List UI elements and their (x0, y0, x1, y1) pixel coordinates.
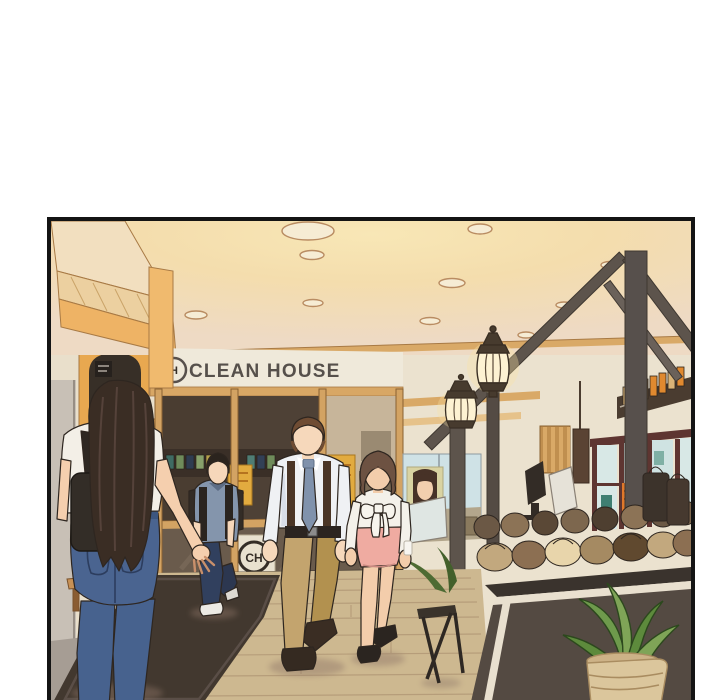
orange-beam (149, 267, 173, 388)
mall-scene: H CLEAN HOUSE (51, 221, 691, 700)
tall-bag (643, 473, 669, 521)
small-plaque (95, 361, 112, 377)
page-background: H CLEAN HOUSE (0, 0, 720, 700)
counter-mirror (408, 497, 447, 543)
tall-bag (667, 479, 689, 525)
phone (404, 541, 412, 555)
hanging-board (573, 429, 589, 483)
slat-wall (540, 426, 570, 473)
comic-panel: H CLEAN HOUSE (47, 217, 695, 700)
store-name-text: CLEAN HOUSE (189, 361, 341, 382)
glass-logo-letters: CH (245, 551, 262, 565)
